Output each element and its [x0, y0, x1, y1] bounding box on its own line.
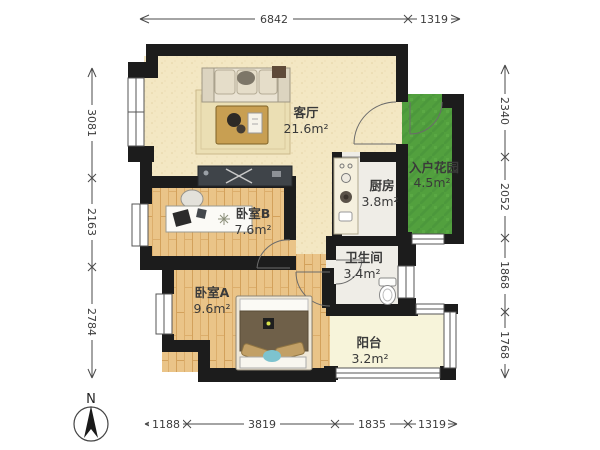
label-balcony-name: 阳台 — [356, 335, 381, 350]
window-living-left — [128, 78, 144, 146]
compass-label: N — [86, 392, 96, 407]
wall-segment — [326, 236, 336, 260]
label-bathroom-area: 3.4m² — [343, 266, 380, 281]
label-garden-name: 入户花园 — [409, 160, 459, 175]
sofa-cushion-dark — [237, 71, 255, 85]
floor-plan-canvas: 客厅 21.6m² 卧室B 7.6m² 卧室A 9.6m² 厨房 3.8m² 卫… — [0, 0, 600, 450]
toilet — [379, 278, 396, 305]
bed-throw — [263, 350, 281, 362]
dim-label-bottom-2: 1835 — [358, 418, 386, 431]
window-bedroom-b-left — [132, 204, 148, 246]
floor-plan-page: 客厅 21.6m² 卧室B 7.6m² 卧室A 9.6m² 厨房 3.8m² 卫… — [0, 0, 600, 450]
stove-burner — [342, 174, 351, 183]
window-balcony-right — [444, 312, 456, 368]
window-bedroom-a-left — [156, 294, 172, 334]
window-balcony-top — [416, 304, 444, 314]
coffee-table — [216, 106, 268, 144]
desk-item — [196, 208, 207, 219]
dim-label-bottom-1: 3819 — [248, 418, 276, 431]
double-bed — [236, 296, 312, 370]
dim-label-top-0: 6842 — [260, 13, 288, 26]
window-bathroom-right — [398, 266, 414, 298]
teacup — [237, 125, 246, 134]
dim-label-top-1: 1319 — [420, 13, 448, 26]
label-bedroom-a-area: 9.6m² — [193, 301, 230, 316]
sofa — [202, 66, 290, 102]
tray — [248, 113, 262, 133]
wall-segment — [162, 268, 174, 294]
dim-label-bottom-0: 1188 — [152, 418, 180, 431]
label-bedroom-a-name: 卧室A — [195, 285, 230, 300]
dim-right: 2340 2052 1868 1768 — [498, 65, 512, 378]
dim-label-left-0: 3081 — [85, 109, 98, 137]
dim-label-right-2: 1868 — [498, 261, 511, 289]
dim-label-left-2: 2784 — [85, 308, 98, 336]
wall-segment — [398, 298, 416, 308]
wall-segment — [322, 268, 334, 308]
label-living-name: 客厅 — [292, 105, 319, 120]
desk-chair — [181, 190, 203, 208]
label-bathroom-name: 卫生间 — [345, 250, 383, 265]
wall-segment — [128, 146, 154, 162]
dim-top: 6842 1319 — [140, 13, 460, 26]
wall-segment — [128, 62, 154, 78]
kitchen-sink — [339, 212, 352, 221]
wall-segment — [444, 234, 464, 244]
garden-door-threshold — [406, 94, 444, 108]
wall-segment — [146, 44, 408, 56]
dim-label-right-3: 1768 — [498, 331, 511, 359]
tv-console — [198, 166, 292, 186]
room-balcony-floor — [330, 306, 450, 376]
wall-segment — [396, 44, 408, 102]
wall-segment — [360, 152, 408, 162]
dim-bottom: 1188 3819 1835 1319 — [145, 418, 457, 431]
kettle — [227, 113, 241, 127]
compass: N — [74, 392, 108, 441]
window-balcony-bottom — [336, 368, 440, 378]
kitchen-counter — [334, 158, 358, 234]
dim-label-bottom-3: 1319 — [418, 418, 446, 431]
dim-label-left-1: 2163 — [85, 208, 98, 236]
dim-left: 3081 2163 2784 — [85, 68, 99, 378]
label-kitchen-area: 3.8m² — [361, 194, 398, 209]
bed-head-band — [240, 299, 308, 311]
dim-label-right-0: 2340 — [498, 97, 511, 125]
dim-label-right-1: 2052 — [498, 183, 511, 211]
wall-segment — [396, 232, 412, 244]
label-balcony-area: 3.2m² — [351, 351, 388, 366]
label-living-area: 21.6m² — [283, 121, 328, 136]
window-garden-bottom — [412, 234, 444, 244]
label-kitchen-name: 厨房 — [369, 178, 394, 193]
label-bedroom-b-name: 卧室B — [236, 206, 271, 221]
sofa-side-pillow — [272, 66, 286, 78]
label-garden-area: 4.5m² — [413, 175, 450, 190]
label-bedroom-b-area: 7.6m² — [234, 222, 271, 237]
